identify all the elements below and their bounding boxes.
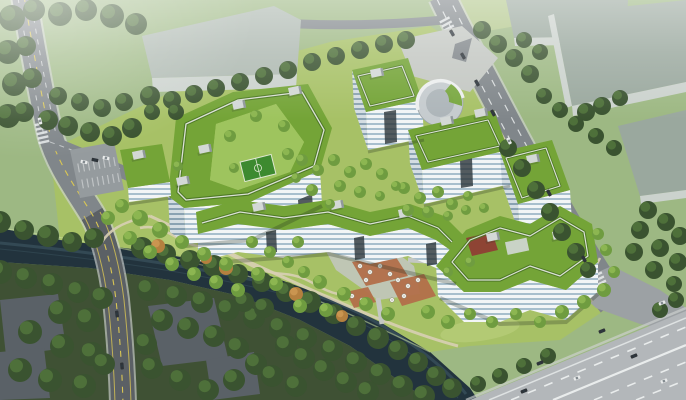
tree-icon — [338, 288, 346, 296]
tree-icon — [315, 360, 327, 372]
tree-icon — [480, 204, 486, 210]
tree-icon — [345, 167, 352, 174]
tree-icon — [601, 245, 608, 252]
tree-icon — [169, 105, 178, 114]
umbrella-icon — [418, 280, 419, 281]
tree-icon — [568, 244, 578, 254]
tree-icon — [442, 316, 450, 324]
tree-icon — [415, 193, 422, 200]
umbrella-icon — [390, 274, 391, 275]
tree-icon — [598, 284, 606, 292]
tree-icon — [511, 309, 518, 316]
tree-icon — [517, 359, 526, 368]
tree-icon — [522, 66, 532, 76]
tree-icon — [199, 380, 211, 392]
north-branch-road — [300, 20, 444, 25]
tree-icon — [78, 309, 91, 322]
tree-icon — [428, 367, 439, 378]
tree-icon — [398, 32, 408, 42]
tree-icon — [464, 192, 470, 198]
tree-icon — [337, 311, 344, 318]
tree-icon — [348, 317, 359, 328]
tree-icon — [283, 149, 290, 156]
tree-icon — [667, 277, 676, 286]
umbrella-icon — [360, 266, 361, 267]
tree-icon — [230, 164, 236, 170]
tree-icon — [626, 244, 636, 254]
tree-icon — [10, 359, 23, 372]
tree-icon — [632, 222, 642, 232]
tree-icon — [50, 88, 60, 98]
tree-icon — [307, 185, 314, 192]
tree-icon — [328, 48, 338, 58]
tree-icon — [295, 348, 307, 360]
tree-icon — [589, 129, 598, 138]
tree-icon — [517, 33, 526, 42]
tree-icon — [297, 155, 304, 162]
tree-icon — [382, 308, 390, 316]
tree-icon — [444, 268, 450, 274]
tree-icon — [102, 5, 115, 18]
tree-icon — [50, 301, 63, 314]
tree-icon — [371, 364, 383, 376]
tree-icon — [179, 318, 191, 330]
tree-icon — [541, 349, 550, 358]
umbrella-icon — [404, 296, 405, 297]
tree-icon — [646, 262, 656, 272]
umbrella-icon — [366, 280, 367, 281]
tree-icon — [176, 236, 184, 244]
tree-icon — [290, 288, 298, 296]
tree-icon — [672, 228, 682, 238]
tree-icon — [93, 288, 105, 300]
tree-icon — [116, 200, 124, 208]
tree-icon — [594, 98, 604, 108]
tree-icon — [422, 306, 430, 314]
tree-icon — [220, 258, 228, 266]
tree-icon — [535, 317, 542, 324]
tree-icon — [225, 131, 232, 138]
block-south-archway — [426, 242, 437, 266]
tree-icon — [533, 45, 542, 54]
tree-icon — [25, 0, 37, 12]
tree-icon — [210, 276, 218, 284]
tree-icon — [251, 111, 258, 118]
tree-icon — [279, 121, 286, 128]
tree-icon — [229, 338, 241, 350]
tree-icon — [355, 187, 362, 194]
tree-icon — [293, 237, 300, 244]
gatehouse-roof — [120, 144, 170, 188]
tree-icon — [658, 214, 668, 224]
tree-icon — [225, 370, 237, 382]
block-ne-archway — [460, 158, 473, 188]
tree-icon — [39, 226, 51, 238]
tree-icon — [40, 369, 53, 382]
tree-icon — [335, 181, 342, 188]
tree-icon — [578, 104, 588, 114]
tree-icon — [359, 382, 371, 394]
tree-icon — [127, 14, 139, 26]
tree-icon — [514, 160, 524, 170]
tree-icon — [462, 206, 468, 212]
tree-icon — [124, 232, 132, 240]
tree-icon — [104, 127, 115, 138]
tree-icon — [323, 340, 335, 352]
tree-icon — [1, 6, 15, 20]
aerial-rendering — [0, 0, 686, 400]
tree-icon — [198, 248, 206, 256]
tree-icon — [232, 284, 240, 292]
tree-icon — [18, 37, 29, 48]
tree-icon — [352, 42, 362, 52]
tree-icon — [16, 103, 27, 114]
tree-icon — [493, 369, 502, 378]
tree-icon — [447, 199, 454, 206]
tree-icon — [314, 276, 322, 284]
tree-icon — [77, 0, 89, 12]
tree-icon — [174, 162, 180, 168]
tree-icon — [17, 268, 29, 280]
umbrella-icon — [408, 286, 409, 287]
tree-icon — [102, 212, 110, 220]
tree-icon — [167, 286, 179, 298]
tree-icon — [410, 353, 421, 364]
tree-icon — [415, 386, 427, 398]
tree-icon — [528, 182, 538, 192]
tree-icon — [153, 223, 162, 232]
tree-icon — [369, 328, 381, 340]
tree-icon — [377, 169, 384, 176]
block-north-archway — [384, 110, 397, 144]
tree-icon — [86, 229, 97, 240]
tree-icon — [50, 3, 63, 16]
tree-icon — [265, 247, 272, 254]
block-south-archway — [354, 236, 365, 260]
tree-icon — [145, 105, 154, 114]
tree-icon — [392, 182, 398, 188]
tree-icon — [297, 328, 309, 340]
tree-icon — [256, 68, 266, 78]
tree-icon — [487, 317, 494, 324]
tree-icon — [280, 62, 290, 72]
tree-icon — [294, 300, 302, 308]
tree-icon — [277, 336, 289, 348]
tree-icon — [182, 251, 193, 262]
tree-icon — [670, 254, 680, 264]
tree-icon — [465, 309, 472, 316]
rendering-canvas — [0, 0, 686, 400]
tree-icon — [326, 200, 332, 206]
tree-icon — [144, 246, 152, 254]
tree-icon — [287, 376, 299, 388]
tree-icon — [390, 341, 401, 352]
tree-icon — [444, 212, 450, 218]
umbrella-icon — [398, 280, 399, 281]
umbrella-icon — [392, 300, 393, 301]
tree-icon — [43, 274, 55, 286]
car-icon — [120, 362, 124, 369]
tree-icon — [193, 292, 205, 304]
tree-icon — [270, 278, 278, 286]
tree-icon — [52, 335, 65, 348]
tree-icon — [64, 233, 75, 244]
umbrella-icon — [352, 296, 353, 297]
tree-icon — [74, 375, 87, 388]
tree-icon — [474, 22, 484, 32]
tree-icon — [72, 94, 82, 104]
tree-icon — [24, 69, 35, 80]
tree-icon — [271, 318, 283, 330]
tree-icon — [613, 91, 622, 100]
tree-icon — [166, 258, 174, 266]
tree-icon — [139, 280, 151, 292]
tree-icon — [208, 80, 218, 90]
tree-icon — [142, 87, 153, 98]
tree-icon — [640, 202, 650, 212]
tree-icon — [593, 229, 600, 236]
tree-icon — [607, 141, 616, 150]
tree-icon — [292, 174, 298, 180]
tree-icon — [320, 304, 328, 312]
tree-icon — [471, 377, 480, 386]
tree-icon — [153, 310, 165, 322]
tree-icon — [556, 306, 564, 314]
tree-icon — [219, 300, 231, 312]
tree-icon — [256, 299, 267, 310]
tree-icon — [247, 237, 254, 244]
tree-icon — [490, 36, 500, 46]
tree-icon — [669, 293, 678, 302]
umbrella-icon — [370, 272, 371, 273]
tree-icon — [347, 352, 359, 364]
tree-icon — [304, 54, 314, 64]
tree-icon — [4, 73, 17, 86]
tree-icon — [186, 86, 196, 96]
tree-icon — [542, 204, 552, 214]
tree-icon — [133, 211, 142, 220]
tree-icon — [578, 296, 586, 304]
tree-icon — [376, 192, 382, 198]
tree-icon — [252, 268, 260, 276]
tree-icon — [95, 354, 107, 366]
tree-icon — [137, 334, 149, 346]
tree-icon — [283, 257, 290, 264]
tree-icon — [164, 92, 174, 102]
tree-icon — [466, 258, 472, 264]
tree-icon — [361, 159, 368, 166]
tree-icon — [554, 224, 564, 234]
tree-icon — [143, 358, 155, 370]
tree-icon — [423, 207, 430, 214]
tree-icon — [247, 354, 259, 366]
tree-icon — [506, 50, 516, 60]
tree-icon — [403, 205, 410, 212]
tree-icon — [569, 117, 578, 126]
tree-icon — [581, 263, 590, 272]
tree-icon — [60, 117, 71, 128]
tree-icon — [313, 165, 320, 172]
tree-icon — [232, 74, 242, 84]
tree-icon — [393, 376, 405, 388]
tree-icon — [537, 89, 546, 98]
tree-icon — [329, 155, 336, 162]
tree-icon — [263, 366, 275, 378]
tree-icon — [652, 240, 662, 250]
tree-icon — [171, 370, 183, 382]
tree-icon — [553, 103, 562, 112]
tree-icon — [116, 94, 126, 104]
tree-icon — [188, 268, 196, 276]
tree-icon — [444, 379, 455, 390]
tree-icon — [82, 343, 95, 356]
tree-icon — [94, 100, 104, 110]
tree-icon — [69, 282, 81, 294]
tree-icon — [376, 36, 386, 46]
tree-icon — [299, 267, 306, 274]
tree-icon — [16, 221, 27, 232]
tree-icon — [337, 372, 349, 384]
tree-icon — [124, 119, 135, 130]
tree-icon — [609, 267, 616, 274]
tree-icon — [433, 187, 440, 194]
tree-icon — [82, 123, 93, 134]
tree-icon — [205, 326, 217, 338]
tree-icon — [20, 321, 33, 334]
tree-icon — [360, 298, 368, 306]
